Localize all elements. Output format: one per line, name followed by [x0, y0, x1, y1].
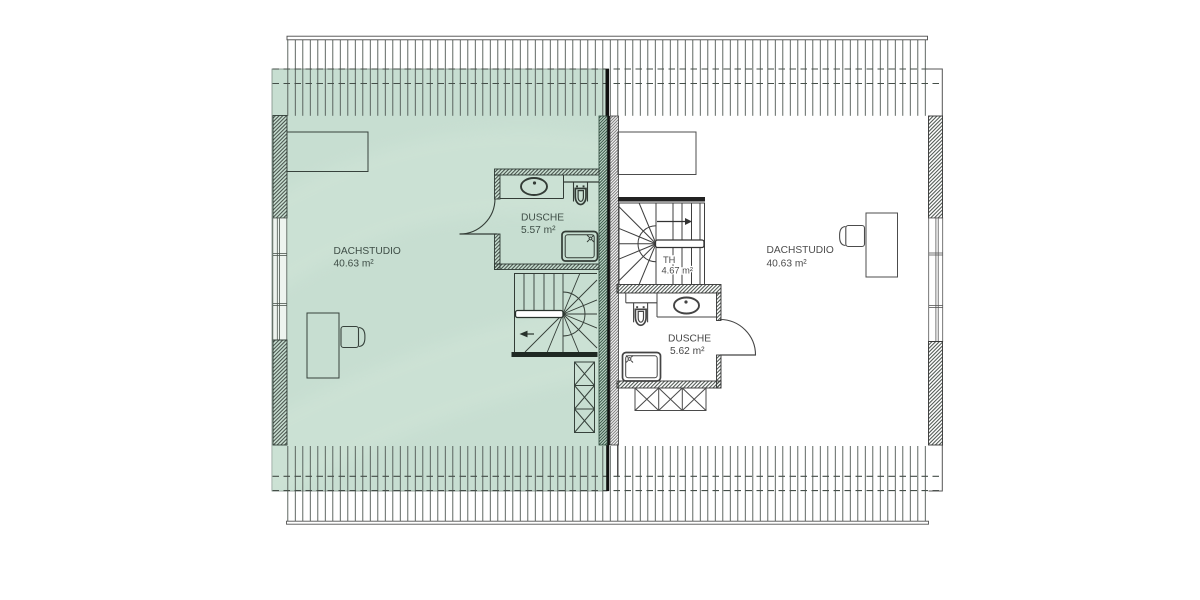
svg-text:TH: TH: [663, 255, 675, 265]
svg-text:5.57 m²: 5.57 m²: [521, 225, 556, 236]
svg-text:5.62 m²: 5.62 m²: [670, 346, 705, 357]
svg-text:DACHSTUDIO: DACHSTUDIO: [334, 246, 401, 257]
svg-text:DACHSTUDIO: DACHSTUDIO: [767, 245, 834, 256]
svg-text:DUSCHE: DUSCHE: [668, 334, 711, 345]
svg-text:DUSCHE: DUSCHE: [521, 213, 564, 224]
svg-text:4.67 m²: 4.67 m²: [662, 266, 694, 276]
svg-text:40.63 m²: 40.63 m²: [767, 259, 808, 270]
svg-text:40.63 m²: 40.63 m²: [334, 259, 375, 270]
